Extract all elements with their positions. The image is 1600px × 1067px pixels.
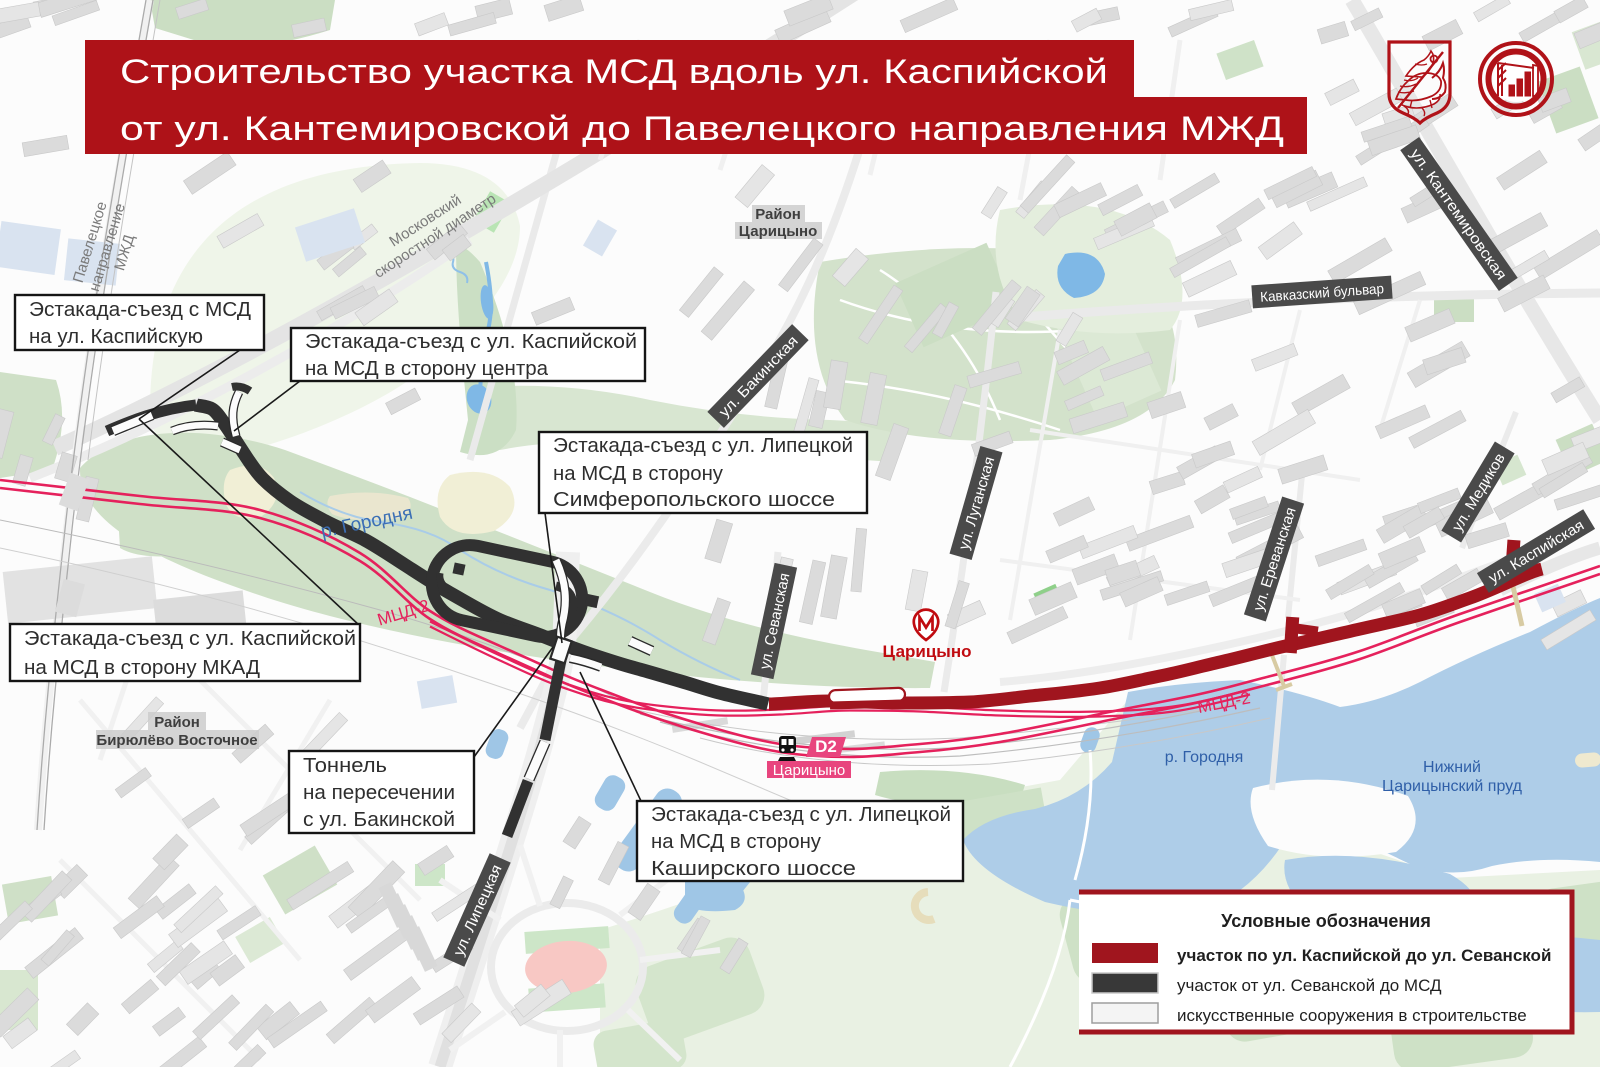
svg-text:на МСД в сторону центра: на МСД в сторону центра: [305, 358, 549, 380]
svg-text:Царицыно: Царицыно: [883, 642, 972, 661]
svg-text:Царицынский пруд: Царицынский пруд: [1382, 778, 1523, 795]
svg-text:Район: Район: [755, 206, 801, 223]
svg-text:Район: Район: [154, 714, 200, 731]
svg-text:от ул. Кантемировской до Павел: от ул. Кантемировской до Павелецкого нап…: [120, 110, 1284, 148]
svg-text:Нижний: Нижний: [1423, 759, 1481, 776]
svg-text:Симферопольского шоссе: Симферопольского шоссе: [553, 489, 835, 511]
svg-text:Тоннель: Тоннель: [303, 755, 387, 777]
svg-text:на пересечении: на пересечении: [303, 782, 455, 804]
svg-text:Эстакада-съезд с ул. Липецкой: Эстакада-съезд с ул. Липецкой: [651, 804, 951, 826]
svg-text:на МСД в сторону: на МСД в сторону: [553, 463, 723, 485]
svg-text:участок по ул. Каспийской до у: участок по ул. Каспийской до ул. Севанск…: [1177, 946, 1551, 965]
svg-text:Эстакада-съезд с ул. Каспийско: Эстакада-съезд с ул. Каспийской: [24, 628, 356, 650]
svg-text:Царицыно: Царицыно: [773, 762, 846, 779]
svg-text:р. Городня: р. Городня: [1165, 749, 1244, 766]
svg-text:Эстакада-съезд с МСД: Эстакада-съезд с МСД: [29, 299, 251, 321]
svg-text:Условные обозначения: Условные обозначения: [1221, 911, 1431, 931]
svg-text:Каширского шоссе: Каширского шоссе: [651, 858, 856, 880]
svg-text:Эстакада-съезд с ул. Каспийско: Эстакада-съезд с ул. Каспийской: [305, 331, 637, 353]
svg-text:участок от ул. Севанской до МС: участок от ул. Севанской до МСД: [1177, 976, 1442, 995]
svg-text:на ул. Каспийскую: на ул. Каспийскую: [29, 326, 203, 348]
svg-text:с ул. Бакинской: с ул. Бакинской: [303, 809, 455, 831]
svg-text:Эстакада-съезд с ул. Липецкой: Эстакада-съезд с ул. Липецкой: [553, 435, 853, 457]
svg-text:на МСД в сторону МКАД: на МСД в сторону МКАД: [24, 657, 260, 679]
svg-text:Строительство участка МСД вдол: Строительство участка МСД вдоль ул. Касп…: [120, 53, 1108, 91]
svg-text:Царицыно: Царицыно: [739, 223, 818, 240]
svg-text:D2: D2: [815, 737, 837, 756]
svg-text:искусственные сооружения в стр: искусственные сооружения в строительстве: [1177, 1006, 1527, 1025]
svg-text:на МСД в сторону: на МСД в сторону: [651, 831, 821, 853]
svg-text:Бирюлёво Восточное: Бирюлёво Восточное: [96, 732, 257, 749]
